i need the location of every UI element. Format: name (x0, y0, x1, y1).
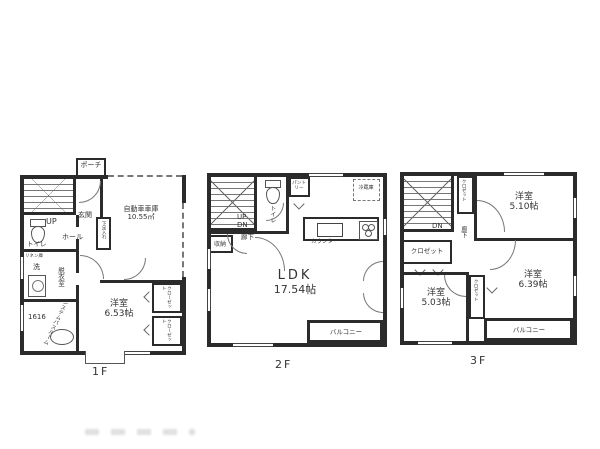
floor-3f: DN クロゼット 洋室 5.10帖 廊下 クロゼット (398, 168, 593, 383)
window (504, 172, 544, 176)
bath-size-label: 1616 (28, 313, 46, 321)
wall-seg (76, 239, 79, 273)
3f-bedroom2-name: 洋室 (524, 270, 542, 280)
1f-stairs (24, 179, 76, 215)
shoe-cabinet-label: 下足入れ (101, 221, 106, 239)
1f-bedroom-name: 洋室 (110, 299, 128, 309)
1f-bedroom-size: 6.53帖 (104, 309, 133, 319)
closet-lower-label: クローゼット (161, 319, 171, 343)
2f-outer-walls: UP DN トイレ パントリー 冷蔵庫 廊下 収納 (207, 173, 387, 347)
ldk-size-label: 17.54帖 (259, 284, 331, 297)
1f-floor-label: 1F (92, 366, 109, 379)
3f-bedroom1-name: 洋室 (515, 192, 533, 202)
floor-1f: ポーチ 自動車車庫 10.55㎡ UP 玄関 ホール 下足入れ (20, 158, 190, 383)
3f-bedroom1-label: 洋室 5.10帖 (489, 192, 559, 213)
fridge-box: 冷蔵庫 (353, 179, 380, 201)
burner-icon (365, 230, 372, 237)
pantry-label: パントリー (292, 181, 306, 191)
3f-bedroom2-size: 6.39帖 (518, 280, 547, 290)
floor-2f: UP DN トイレ パントリー 冷蔵庫 廊下 収納 (205, 170, 400, 385)
washer-drum-icon (32, 280, 44, 292)
window (207, 249, 211, 269)
toilet-icon (266, 187, 280, 204)
shoe-cabinet-box: 下足入れ (96, 217, 111, 250)
dressing-room-label: 脱衣室 (56, 267, 63, 287)
3f-closet-left-box: クロゼット (404, 240, 452, 264)
garage-door-arc (124, 258, 146, 280)
window (573, 198, 577, 218)
balcony-door-arc (363, 261, 383, 281)
3f-closet-mid-box: クロゼット (469, 275, 485, 319)
garage-open-right (182, 203, 186, 277)
1f-toilet-label: トイレ (27, 241, 47, 248)
3f-balcony: バルコニー (484, 318, 573, 341)
door-chevron (293, 198, 304, 209)
window (418, 341, 452, 345)
fridge-label: 冷蔵庫 (356, 186, 376, 192)
3f-closet-top-box: クロゼット (457, 176, 474, 214)
bathtub-icon (50, 329, 74, 345)
bedroom-door-arc (80, 255, 104, 279)
porch-label: ポーチ (73, 161, 109, 169)
3f-bedroom3-label: 洋室 5.03帖 (408, 288, 464, 309)
3f-stairs (404, 176, 454, 232)
garage-area: 10.55㎡ (127, 213, 154, 221)
3f-bedroom2-label: 洋室 6.39帖 (498, 270, 568, 291)
wall-seg (76, 215, 79, 227)
1f-outer-walls: 自動車車庫 10.55㎡ UP 玄関 ホール 下足入れ (20, 175, 186, 355)
window (400, 288, 404, 308)
ldk-name-label: LDK (259, 269, 331, 284)
scan-artifact (85, 429, 195, 435)
3f-dn-label: DN (432, 222, 443, 230)
3f-outer-walls: DN クロゼット 洋室 5.10帖 廊下 クロゼット (400, 172, 577, 345)
1f-bedroom-label: 洋室 6.53帖 (84, 299, 154, 320)
washer-icon (28, 275, 46, 297)
window (309, 173, 343, 177)
linen-label: リネン庫 (25, 254, 43, 259)
closet-upper-box: クローゼット (152, 283, 182, 313)
2f-up-label: UP (237, 213, 246, 221)
wash-label: 洗 (33, 263, 40, 271)
2f-dn-label: DN (237, 221, 248, 229)
window (383, 219, 387, 235)
entrance-door-arc (79, 181, 101, 203)
3f-floor-label: 3F (470, 355, 487, 368)
garage-open-top (108, 175, 182, 179)
3f-closet-mid-label: クロゼット (473, 279, 478, 315)
2f-balcony-label: バルコニー (318, 329, 374, 336)
hall-label: ホール (62, 233, 83, 241)
wall-seg (474, 238, 573, 241)
2f-balcony: バルコニー (307, 320, 383, 343)
pantry-box: パントリー (289, 177, 310, 197)
3f-hallway-label: 廊下 (459, 226, 466, 238)
1f-up-label: UP (46, 217, 57, 226)
2f-floor-label: 2F (275, 359, 292, 372)
3f-bedroom3-size: 5.03帖 (421, 298, 450, 308)
wall-seg (76, 285, 79, 351)
kitchen-island (317, 223, 343, 237)
door-chevron (486, 282, 497, 293)
balcony-door-arc (363, 293, 383, 313)
stove-icon (359, 221, 378, 240)
storage-label: 収納 (214, 242, 226, 249)
floor-plan-canvas: ポーチ 自動車車庫 10.55㎡ UP 玄関 ホール 下足入れ (0, 0, 600, 449)
window (573, 276, 577, 296)
entrance-label: 玄関 (78, 211, 92, 219)
garage-label: 自動車車庫 10.55㎡ (100, 205, 182, 221)
kitchen-counter (303, 217, 379, 241)
3f-balcony-label: バルコニー (499, 327, 559, 334)
window (207, 289, 211, 311)
3f-bedroom1-size: 5.10帖 (509, 202, 538, 212)
3f-bedroom3-name: 洋室 (427, 288, 445, 298)
window (233, 343, 273, 347)
window (20, 257, 24, 279)
closet-upper-label: クローゼット (161, 286, 171, 310)
ldk-door-arc (255, 237, 285, 271)
2f-stairs (211, 177, 257, 231)
toilet-door-arc (266, 203, 284, 221)
wall-seg (24, 249, 76, 252)
window (20, 305, 24, 331)
garage-name: 自動車車庫 (124, 205, 159, 213)
bedroom2-door-arc (490, 240, 516, 270)
counter-label: カウンター (311, 239, 339, 245)
3f-closet-top-label: クロゼット (461, 179, 466, 209)
3f-closet-left-label: クロゼット (406, 248, 448, 255)
closet-lower-box: クローゼット (152, 316, 182, 346)
entry-step (85, 351, 125, 364)
